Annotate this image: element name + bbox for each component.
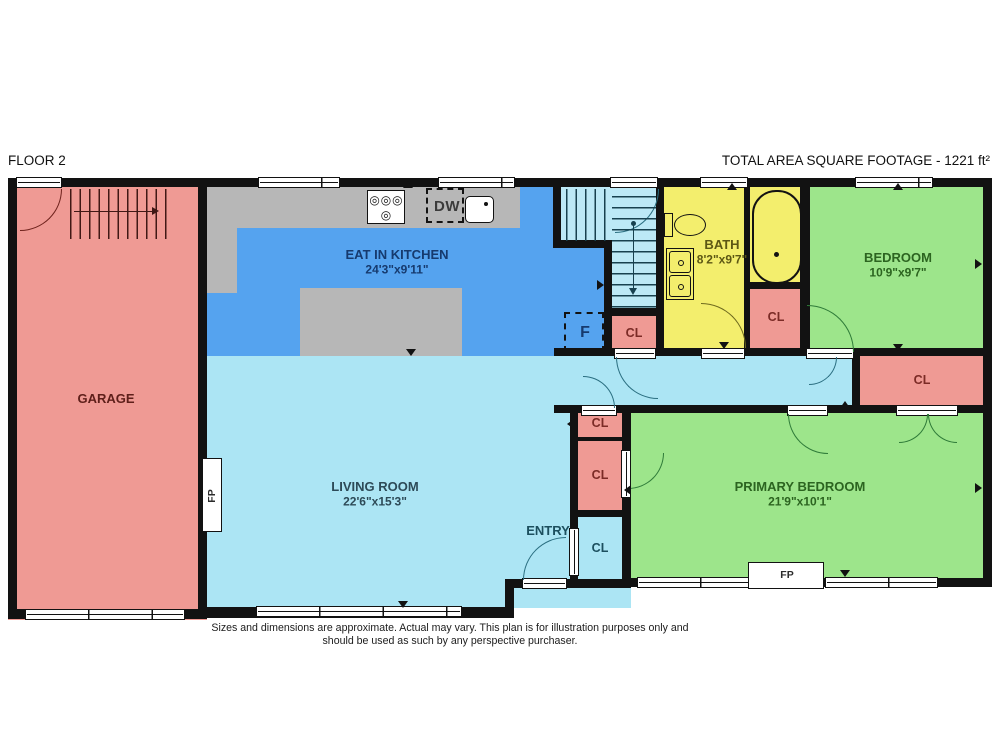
window bbox=[258, 177, 340, 188]
burner-icon: ◎ bbox=[381, 208, 391, 222]
disclaimer-line-2: should be used as such by any perspectiv… bbox=[190, 635, 710, 648]
total-area-label: TOTAL AREA SQUARE FOOTAGE - 1221 ft² bbox=[722, 153, 990, 168]
vanity-sink-icon bbox=[666, 248, 694, 300]
room-living bbox=[207, 356, 631, 608]
disclaimer: Sizes and dimensions are approximate. Ac… bbox=[190, 622, 710, 648]
fireplace-label: FP bbox=[207, 489, 219, 502]
room-dims-living: 22'6"x15'3" bbox=[343, 495, 407, 508]
fireplace-primary: FP bbox=[748, 562, 824, 589]
window bbox=[438, 177, 515, 188]
furnace-box: F bbox=[564, 312, 604, 352]
burner-icon: ◎ bbox=[381, 193, 391, 207]
stairs-upper-run bbox=[566, 189, 606, 241]
closet-label: CL bbox=[592, 417, 609, 431]
room-label-garage: GARAGE bbox=[77, 392, 134, 406]
room-label-primary-bedroom: PRIMARY BEDROOM bbox=[735, 480, 866, 494]
wall bbox=[852, 352, 860, 409]
arrow-marker-icon bbox=[624, 485, 631, 495]
arrow-marker-icon bbox=[597, 280, 604, 290]
window bbox=[256, 606, 462, 617]
room-label-kitchen: EAT IN KITCHEN bbox=[345, 248, 448, 262]
closet-label: CL bbox=[768, 311, 785, 325]
closet-label: CL bbox=[626, 327, 643, 341]
faucet-icon bbox=[484, 202, 488, 206]
entry-closet-door-sill bbox=[569, 528, 579, 576]
room-label-entry: ENTRY bbox=[526, 524, 570, 538]
room-dims-bedroom: 10'9"x9'7" bbox=[869, 266, 926, 279]
bath-door-sill bbox=[701, 348, 745, 359]
wall bbox=[656, 178, 664, 356]
toilet-icon bbox=[674, 214, 706, 236]
window bbox=[825, 577, 938, 588]
wall bbox=[604, 240, 612, 356]
furnace-label: F bbox=[580, 324, 590, 342]
arrow-marker-icon bbox=[567, 419, 574, 429]
dishwasher-label: DW bbox=[434, 199, 460, 216]
kitchen-counter-left bbox=[207, 187, 237, 293]
stairs-direction-arrow bbox=[74, 211, 154, 212]
floor-plan: FLOOR 2 TOTAL AREA SQUARE FOOTAGE - 1221… bbox=[0, 0, 1000, 756]
window bbox=[700, 177, 748, 188]
room-label-bath: BATH bbox=[704, 238, 739, 252]
wall bbox=[744, 187, 750, 356]
closet-label: CL bbox=[914, 374, 931, 388]
wall bbox=[983, 178, 992, 587]
kitchen-island bbox=[300, 288, 462, 356]
arrow-marker-icon bbox=[727, 183, 737, 190]
floor-label: FLOOR 2 bbox=[8, 153, 66, 168]
room-dims-bath: 8'2"x9'7" bbox=[697, 253, 747, 266]
arrow-marker-icon bbox=[893, 344, 903, 351]
burner-icon: ◎ bbox=[369, 193, 379, 207]
closet-label: CL bbox=[592, 469, 609, 483]
wall bbox=[553, 187, 561, 248]
room-label-bedroom: BEDROOM bbox=[864, 251, 932, 265]
arrow-marker-icon bbox=[975, 483, 982, 493]
arrow-marker-icon bbox=[975, 259, 982, 269]
window bbox=[16, 177, 62, 188]
wall bbox=[8, 178, 17, 619]
burner-icon: ◎ bbox=[392, 193, 402, 207]
arrow-marker-icon bbox=[398, 601, 408, 608]
arrow-marker-icon bbox=[406, 349, 416, 356]
sink-basin-icon bbox=[669, 251, 691, 273]
fireplace-living: FP bbox=[202, 458, 222, 532]
room-dims-kitchen: 24'3"x9'11" bbox=[365, 263, 428, 276]
window bbox=[610, 177, 658, 188]
arrow-marker-icon bbox=[893, 183, 903, 190]
wall bbox=[505, 579, 514, 618]
wall bbox=[604, 308, 664, 316]
dishwasher-icon: DW bbox=[426, 188, 464, 223]
bathtub-icon bbox=[752, 190, 802, 284]
stove-icon: ◎◎◎◎ bbox=[367, 190, 405, 224]
window bbox=[637, 577, 750, 588]
tub-drain-icon bbox=[774, 252, 779, 257]
window bbox=[25, 609, 185, 620]
disclaimer-line-1: Sizes and dimensions are approximate. Ac… bbox=[190, 622, 710, 635]
toilet-tank-icon bbox=[664, 213, 673, 237]
stairs-direction-arrow bbox=[633, 224, 634, 290]
arrow-marker-icon bbox=[840, 401, 850, 408]
closet-label: CL bbox=[592, 542, 609, 556]
arrow-marker-icon bbox=[719, 342, 729, 349]
room-dims-primary-bedroom: 21'9"x10'1" bbox=[768, 495, 832, 508]
kitchen-sink-icon bbox=[465, 196, 494, 223]
wall bbox=[198, 178, 207, 619]
room-label-living: LIVING ROOM bbox=[331, 480, 418, 494]
arrow-marker-icon bbox=[198, 277, 205, 287]
sink-basin-icon bbox=[669, 275, 691, 297]
arrow-marker-icon bbox=[403, 181, 413, 188]
fireplace-label: FP bbox=[780, 570, 793, 582]
arrow-marker-icon bbox=[840, 570, 850, 577]
